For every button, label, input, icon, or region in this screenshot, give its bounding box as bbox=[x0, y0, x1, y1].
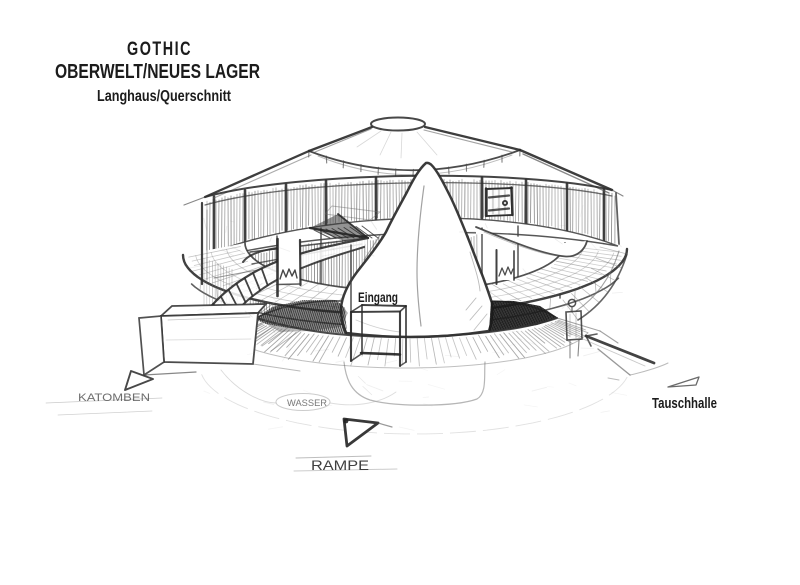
svg-text:OBERWELT/NEUES LAGER: OBERWELT/NEUES LAGER bbox=[55, 61, 260, 83]
svg-text:RAMPE: RAMPE bbox=[311, 458, 369, 473]
svg-text:Eingang: Eingang bbox=[358, 289, 398, 305]
svg-text:KATOMBEN: KATOMBEN bbox=[78, 392, 150, 404]
svg-text:Langhaus/Querschnitt: Langhaus/Querschnitt bbox=[97, 88, 232, 105]
svg-text:GOTHIC: GOTHIC bbox=[127, 39, 192, 60]
svg-text:Tauschhalle: Tauschhalle bbox=[652, 396, 717, 412]
